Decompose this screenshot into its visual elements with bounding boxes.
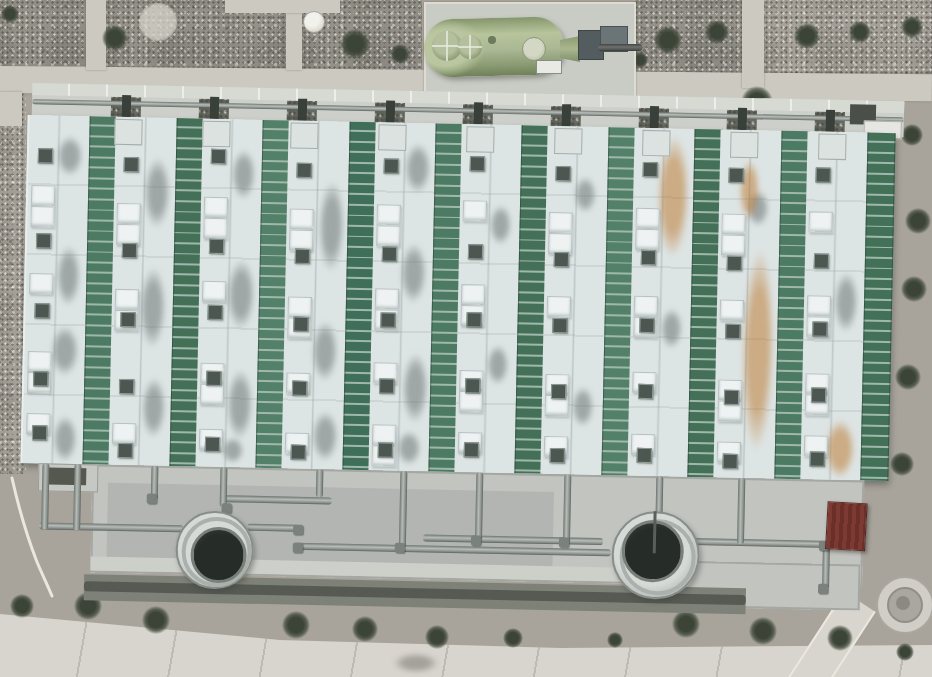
pipe-elbow [395, 543, 405, 553]
roof-stain-gray [486, 345, 509, 385]
roof-stain-gray [572, 386, 595, 426]
roof-edge-pad [114, 119, 143, 146]
roof-hatch [808, 211, 832, 232]
roof-hatch [635, 229, 659, 250]
roof-white-strip [282, 120, 350, 469]
roof-hatch [203, 218, 227, 239]
roof-vent [36, 233, 51, 248]
roof-hatch [722, 214, 746, 235]
rack-post [562, 104, 572, 128]
roof-stain-gray [318, 181, 346, 272]
roof-vent [380, 312, 395, 327]
roof-vent [811, 387, 826, 402]
roof-edge-pad [554, 128, 583, 155]
roof-vent [205, 437, 220, 452]
roof-vent [723, 454, 738, 469]
process-pipe-vertical [737, 478, 745, 544]
roof-hatch [635, 208, 659, 229]
roof-hatch [461, 284, 485, 305]
roof-stain-rust [740, 250, 776, 451]
roof-hatch [112, 423, 136, 444]
pipe-elbow [559, 537, 569, 547]
roof-vent [118, 443, 133, 458]
roof-vent [293, 317, 308, 332]
roof-vent [377, 442, 392, 457]
roof-vent [211, 149, 226, 164]
roof-vent [383, 158, 398, 173]
roof-stain-gray [660, 308, 683, 348]
roof-hatch [203, 197, 227, 218]
aerial-photo-canvas [0, 0, 932, 677]
building-roof [20, 115, 893, 481]
process-pipe-vertical [73, 464, 81, 530]
roof-hatch [27, 351, 51, 372]
roof-vent [297, 163, 312, 178]
rack-post [210, 97, 220, 121]
roof-stain-gray [312, 411, 339, 462]
roof-stain-gray [231, 149, 256, 199]
roof-stain-gray [141, 377, 166, 437]
roof-vent [464, 442, 479, 457]
roof-vent [639, 318, 654, 333]
roof-white-strip [368, 122, 436, 471]
rack-post [738, 108, 748, 132]
roof-vent [33, 371, 48, 386]
roof-hatch [549, 212, 573, 233]
roof-vent [550, 448, 565, 463]
roof-vent [551, 384, 566, 399]
roof-hatch [202, 281, 226, 302]
roof-vent [727, 256, 742, 271]
roof-edge-pad [730, 132, 759, 159]
roof-hatch [721, 235, 745, 256]
pipe-elbow [147, 494, 157, 504]
roof-stain-gray [144, 157, 171, 228]
process-pipe-vertical [563, 474, 571, 542]
roof-vent [813, 253, 828, 268]
pipe-elbow [293, 543, 303, 553]
roof-edge-pad [642, 130, 671, 157]
roof-stain-gray [404, 143, 431, 194]
roof-hatch [29, 273, 53, 294]
roof-vent [121, 312, 136, 327]
roof-hatch [459, 391, 483, 412]
roof-hatch [30, 206, 54, 227]
rack-post [474, 102, 484, 126]
process-pipe-vertical [475, 472, 483, 540]
roof-hatch [288, 296, 312, 317]
roof-vent [38, 148, 53, 163]
roof-stain-gray [401, 353, 428, 424]
roof-edge-pad [290, 122, 319, 149]
roof-stain-gray [139, 267, 167, 348]
roof-stain-gray [311, 321, 338, 382]
roof-vent [642, 162, 657, 177]
pipe-elbow [471, 535, 481, 545]
roof-white-strip [195, 119, 263, 468]
red-roof-shed [825, 501, 868, 551]
roof-vent [815, 167, 830, 182]
roof-white-strip [454, 124, 522, 473]
pipe-elbow [818, 584, 828, 594]
roof-hatch [806, 295, 830, 316]
process-pipe-vertical [316, 469, 324, 497]
roof-vent [124, 157, 139, 172]
roof-stain-gray [489, 205, 512, 245]
roof-vent [725, 324, 740, 339]
rack-post [650, 106, 660, 130]
roof-vent [729, 168, 744, 183]
roof-edge-pad [378, 124, 407, 151]
roof-stain-gray [53, 416, 78, 462]
roof-hatch [117, 203, 141, 224]
roof-vent [812, 321, 827, 336]
roof-vent [295, 249, 310, 264]
roof-vent [32, 425, 47, 440]
roof-vent [122, 243, 137, 258]
roof-white-strip [22, 115, 90, 464]
roof-hatch [374, 288, 398, 309]
roof-hatch [720, 300, 744, 321]
roof-stain-gray [57, 136, 84, 177]
roof-hatch [200, 384, 224, 405]
roof-vent [809, 451, 824, 466]
roof-vent [554, 252, 569, 267]
roof-hatch [376, 225, 400, 246]
roof-vent [35, 303, 50, 318]
roof-vent [468, 244, 483, 259]
roof-stain-rust [824, 420, 855, 479]
roof-edge-pad [818, 134, 847, 161]
roof-vent [119, 379, 134, 394]
roof-vent [206, 371, 221, 386]
roof-vent [470, 156, 485, 171]
roof-stain-gray [56, 246, 81, 306]
roof-stain-gray [400, 243, 427, 304]
rack-post [826, 110, 836, 134]
roof-stain-gray [226, 259, 255, 330]
roof-edge-pad [466, 126, 495, 153]
roof-hatch [463, 200, 487, 221]
roof-stain-gray [226, 369, 253, 440]
process-pipe-vertical [41, 463, 49, 529]
roof-stain-gray [221, 437, 244, 463]
roof-hatch [376, 204, 400, 225]
roof-stain-gray [574, 176, 597, 212]
roof-vent [553, 318, 568, 333]
rack-post [386, 100, 396, 124]
roof-vent [636, 448, 651, 463]
roof-vent [292, 381, 307, 396]
roof-vent [466, 312, 481, 327]
roof-vent [465, 378, 480, 393]
rack-post [122, 95, 132, 119]
roof-stain-gray [50, 326, 79, 377]
roof-vent [381, 246, 396, 261]
roof-vent [638, 384, 653, 399]
roof-vent [379, 378, 394, 393]
roof-hatch [115, 289, 139, 310]
roof-vent [556, 166, 571, 181]
rack-post [298, 99, 308, 123]
roof-green-louver-strip [860, 133, 895, 482]
roof-edge-pad [202, 121, 231, 148]
roof-stain-gray [833, 272, 858, 332]
roof-white-strip [800, 131, 868, 480]
roof-white-strip [109, 117, 177, 466]
roof-hatch [633, 296, 657, 317]
roof-stain-gray [396, 431, 421, 465]
roof-vent [207, 305, 222, 320]
process-pipe-horizontal [247, 524, 299, 532]
process-pipe-vertical [220, 467, 228, 507]
roof-vent [641, 250, 656, 265]
roof-vent [209, 239, 224, 254]
roof-hatch [547, 296, 571, 317]
process-pipe-vertical [822, 546, 830, 588]
roof-white-strip [627, 128, 695, 477]
roof-white-strip [714, 130, 782, 479]
roof-vent [724, 390, 739, 405]
roof-white-strip [541, 126, 609, 475]
facility-group [0, 0, 932, 677]
roof-vent [291, 445, 306, 460]
roof-hatch [290, 209, 314, 230]
pipe-elbow [293, 525, 303, 535]
roof-hatch [31, 185, 55, 206]
